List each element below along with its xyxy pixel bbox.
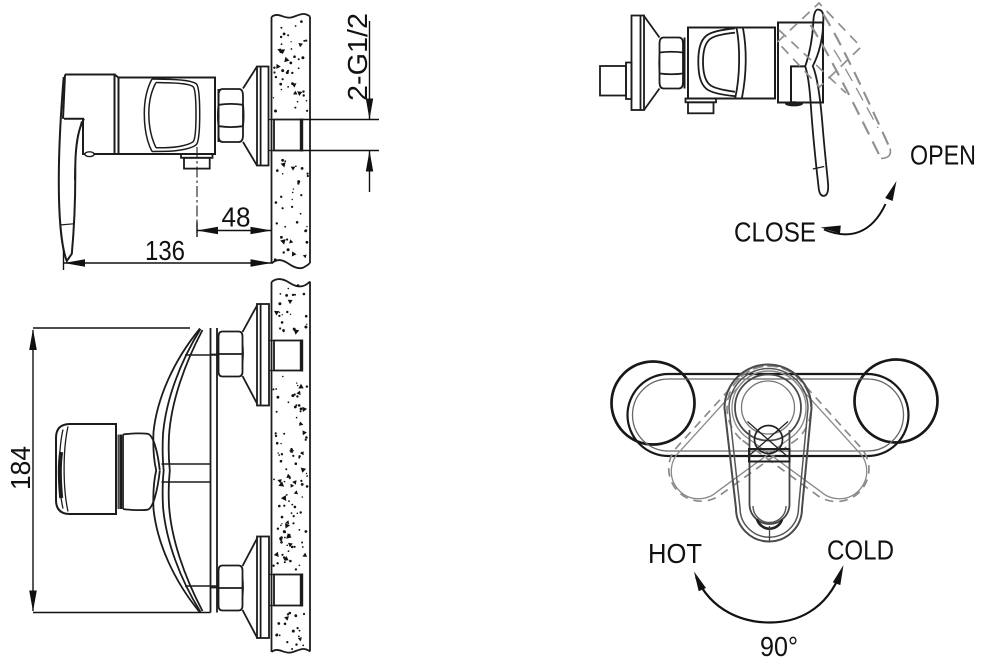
svg-text:COLD: COLD	[827, 535, 894, 566]
svg-text:OPEN: OPEN	[910, 140, 976, 171]
svg-text:136: 136	[145, 235, 185, 266]
svg-text:90°: 90°	[760, 631, 798, 662]
svg-text:HOT: HOT	[648, 538, 702, 569]
svg-text:48: 48	[222, 202, 251, 233]
svg-text:184: 184	[5, 446, 36, 490]
svg-text:2-G1/2: 2-G1/2	[342, 13, 373, 101]
svg-text:CLOSE: CLOSE	[734, 217, 816, 248]
